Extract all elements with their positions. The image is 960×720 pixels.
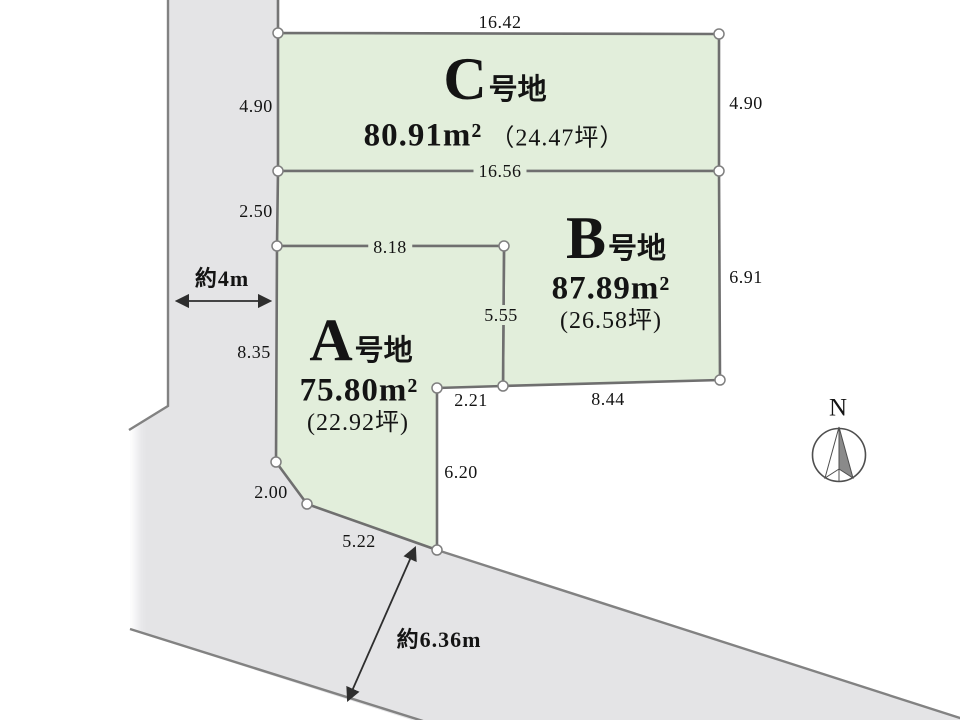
vertex-dot — [273, 28, 283, 38]
dim-a-step: 2.21 — [454, 391, 488, 409]
dim-b-left: 2.50 — [239, 202, 273, 220]
dim-c-top: 16.42 — [479, 13, 522, 31]
dim-c-right: 4.90 — [729, 94, 763, 112]
road-width-west-label: 約4m — [195, 268, 249, 290]
dim-a-b-vertical: 5.55 — [479, 305, 523, 325]
plot-b-area-value: 87.89m² — [552, 273, 671, 306]
white-mask — [0, 348, 137, 720]
plot-a-name: A 号地 — [309, 313, 412, 367]
plot-a-letter: A — [309, 313, 352, 367]
plot-c-area: 80.91m² （24.47坪） — [364, 120, 625, 153]
dim-b-bottom: 8.44 — [591, 390, 625, 408]
north-compass — [813, 427, 866, 482]
vertex-dot — [302, 499, 312, 509]
plot-c-letter: C — [443, 52, 486, 106]
site-plan-diagram: 16.42 4.90 4.90 16.56 2.50 6.91 8.18 5.5… — [0, 0, 960, 720]
dim-a-corner: 2.00 — [254, 483, 288, 501]
dim-a-bottom: 5.22 — [342, 532, 376, 550]
vertex-dot — [499, 241, 509, 251]
plot-b-name: B 号地 — [566, 211, 666, 265]
plot-a-suffix: 号地 — [355, 337, 413, 366]
dim-c-left: 4.90 — [239, 97, 273, 115]
plot-c-area-value: 80.91m² — [364, 120, 483, 153]
vertex-dot — [715, 375, 725, 385]
dim-a-top: 8.18 — [368, 237, 412, 257]
road-edge-west — [129, 0, 168, 430]
vertex-dot — [714, 29, 724, 39]
plot-c-suffix: 号地 — [489, 76, 547, 105]
dim-b-right: 6.91 — [729, 268, 763, 286]
vertex-dot — [714, 166, 724, 176]
dim-a-right: 6.20 — [444, 463, 478, 481]
plot-b-letter: B — [566, 211, 606, 265]
vertex-dot — [498, 381, 508, 391]
dim-a-left: 8.35 — [237, 343, 271, 361]
vertex-dot — [272, 241, 282, 251]
road-width-south-label: 約6.36m — [397, 629, 482, 651]
vertex-dot — [271, 457, 281, 467]
plot-a-area-value: 75.80m² — [300, 375, 419, 408]
vertex-dot — [432, 545, 442, 555]
plot-b-suffix: 号地 — [608, 235, 666, 264]
vertex-dot — [432, 383, 442, 393]
plot-a-tsubo-value: (22.92坪) — [307, 411, 409, 435]
compass-north-label: N — [829, 396, 847, 421]
plot-c-tsubo-value: （24.47坪） — [490, 127, 624, 151]
plot-c-name: C 号地 — [443, 52, 546, 106]
vertex-dot — [273, 166, 283, 176]
plot-b-tsubo-value: (26.58坪) — [560, 309, 662, 333]
dim-c-b-boundary: 16.56 — [474, 161, 527, 181]
